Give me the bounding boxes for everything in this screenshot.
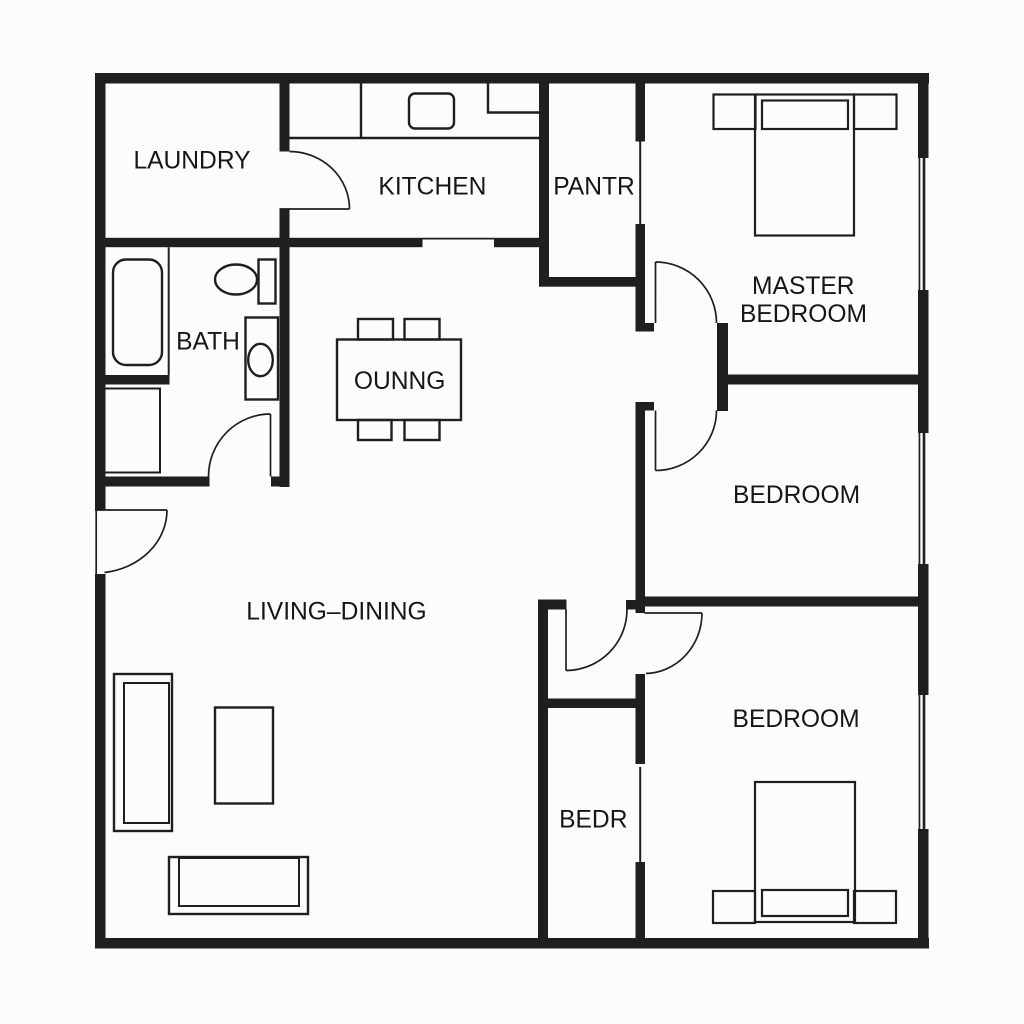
svg-text:BATH: BATH <box>176 329 240 356</box>
svg-text:PANTR: PANTR <box>553 174 635 201</box>
svg-text:BEDROOM: BEDROOM <box>740 301 867 328</box>
svg-text:KITCHEN: KITCHEN <box>378 174 486 201</box>
svg-text:LAUNDRY: LAUNDRY <box>133 148 250 175</box>
svg-text:BEDROOM: BEDROOM <box>733 482 860 509</box>
svg-text:LIVING–DINING: LIVING–DINING <box>246 599 426 626</box>
svg-text:BEDROOM: BEDROOM <box>733 706 860 733</box>
svg-text:MASTER: MASTER <box>752 273 854 300</box>
svg-text:OUNNG: OUNNG <box>354 368 446 395</box>
svg-text:BEDR: BEDR <box>559 807 627 834</box>
